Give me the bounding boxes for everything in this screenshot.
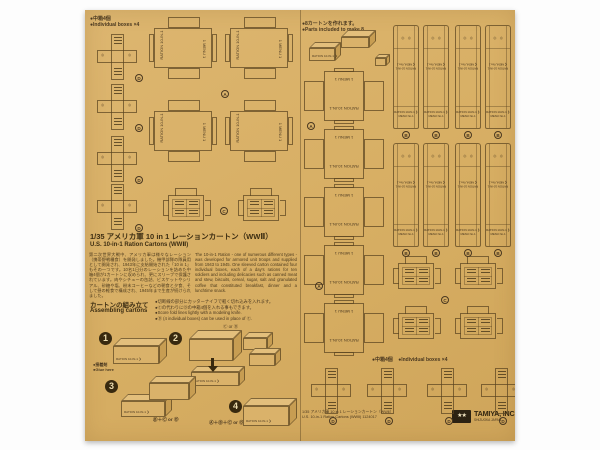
assembly-note-4: ●Ⓓ (4 individual boxes) can be used in p… <box>155 316 252 321</box>
print-text-block <box>467 269 476 275</box>
carton-tab <box>334 236 354 240</box>
carton-strip-template: ◎ ◎ RATION 10-IN-1❮ MENU No.1 RATION 10-… <box>455 25 481 129</box>
photo-background: ●中箱4個 ●Individual boxes ×4 ●8カートンを作れます。 … <box>0 0 600 450</box>
print-text-block <box>444 402 452 410</box>
circled-part-mark-b: B <box>494 249 502 257</box>
brand-subtext: SHIZUOKA JAPAN <box>474 418 501 422</box>
box-print-text: RATION 10-IN-1 ❯ <box>312 54 337 58</box>
print-text-block <box>264 201 273 207</box>
step-4-formula: Ⓐ＋Ⓑ＋Ⓒ or Ⓓ <box>209 420 244 426</box>
note-line-en: ●Individual boxes ×4 <box>398 357 447 363</box>
strip-fold-line <box>486 224 511 225</box>
strip-fold-line <box>456 48 481 49</box>
individual-box-template: ◎ ◎ <box>367 368 407 414</box>
strip-print-line: RATION 10-IN-1 <box>394 184 418 188</box>
strip-print-line: ❮ MENU No.1 <box>424 62 448 66</box>
punch-hole-mark: ◎ <box>128 155 131 159</box>
open-carton-illustration <box>341 30 376 48</box>
carton-tab <box>334 126 354 130</box>
carton-print-text: 1 MENU 1 <box>326 309 362 314</box>
step-2-carton <box>189 330 242 361</box>
strip-print-text: RATION 10-IN-1❮ MENU No.1 <box>394 180 418 188</box>
circled-part-mark-d: D <box>135 176 143 184</box>
strip-print-text: RATION 10-IN-1❮ MENU No.1 <box>486 62 510 70</box>
lid-tab <box>393 268 399 284</box>
carton-tab <box>334 294 354 298</box>
lid-grid-line <box>402 326 430 327</box>
strip-print-line: ❮ MENU No.1 <box>486 180 510 184</box>
strip-print-text: RATION 10-IN-1 ❯MENU No.1 <box>486 228 510 236</box>
print-text-block <box>405 328 414 334</box>
box-front-face: RATION 10-IN-1 ❯ <box>113 346 159 364</box>
assembling-heading-english: Assembling cartons <box>90 308 147 314</box>
carton-flap <box>168 151 200 162</box>
lid-tab <box>497 318 503 334</box>
strip-print-text: RATION 10-IN-1❮ MENU No.1 <box>424 180 448 188</box>
carton-print-text: 1 MENU 1 <box>278 31 283 67</box>
box-print-text: RATION 10-IN-1 ❯ <box>246 419 271 423</box>
carton-flap <box>288 34 293 62</box>
box-front-face <box>341 37 369 48</box>
carton-flap <box>304 81 324 111</box>
carton-print-text: RATION 10-IN-1 <box>326 164 362 169</box>
lid-flap <box>467 306 489 314</box>
carton-sleeve-template: RATION 10-IN-1 1 MENU 1 <box>149 98 219 164</box>
carton-lid-template <box>398 313 434 339</box>
print-text-block <box>481 328 490 334</box>
circled-part-mark-d: D <box>329 417 337 425</box>
lid-grid-line <box>402 276 430 277</box>
circled-part-mark-d: D <box>499 417 507 425</box>
carton-print-text: RATION 10-IN-1 <box>326 222 362 227</box>
lid-tab <box>238 200 244 216</box>
strip-fold-line <box>456 166 481 167</box>
carton-print-text: 1 MENU 1 <box>326 251 362 256</box>
circled-part-mark-d: D <box>135 124 143 132</box>
strip-print-dots: ◎ ◎ <box>424 154 448 159</box>
description-english: The 10-in-1 Ration - one of numerous dif… <box>195 252 297 300</box>
strip-print-text: RATION 10-IN-1❮ MENU No.1 <box>486 180 510 188</box>
carton-tab <box>334 68 354 72</box>
carton-lid-template <box>460 263 496 289</box>
carton-flap <box>168 17 200 28</box>
print-text-block <box>481 269 490 275</box>
strip-print-line: RATION 10-IN-1 <box>486 184 510 188</box>
print-text-block <box>405 269 414 275</box>
carton-sleeve-template: RATION 10-IN-1 1 MENU 1 <box>225 98 295 164</box>
step-2-sleeve: RATION 10-IN-1 ❯ <box>191 366 245 386</box>
punch-hole-mark: ◎ <box>485 387 488 391</box>
punch-hole-mark: ◎ <box>128 53 131 57</box>
circled-part-mark-b: B <box>432 249 440 257</box>
circled-part-mark-d: D <box>385 417 393 425</box>
circled-part-mark-b: B <box>464 131 472 139</box>
carton-tab <box>334 178 354 182</box>
print-text-block <box>467 319 476 325</box>
strip-print-text: RATION 10-IN-1 ❯MENU No.1 <box>486 110 510 118</box>
strip-print-line: MENU No.1 <box>456 232 480 236</box>
carton-strip-template: ◎ ◎ RATION 10-IN-1❮ MENU No.1 RATION 10-… <box>423 143 449 247</box>
carton-print-text: 1 MENU 1 <box>326 193 362 198</box>
print-text-block <box>419 319 428 325</box>
strip-print-line: MENU No.1 <box>456 114 480 118</box>
carton-sleeve-template: 1 MENU 1 RATION 10-IN-1 <box>304 300 384 356</box>
lid-flap <box>405 256 427 264</box>
punch-hole-mark: ◎ <box>315 387 318 391</box>
glue-line-en: ●Glue here <box>93 367 114 372</box>
print-text-block <box>384 371 392 379</box>
carton-strip-template: ◎ ◎ RATION 10-IN-1❮ MENU No.1 RATION 10-… <box>423 25 449 129</box>
carton-print-text: RATION 10-IN-1 <box>326 338 362 343</box>
punch-hole-mark: ◎ <box>128 103 131 107</box>
step-4-finished-carton: RATION 10-IN-1 ❯ <box>243 398 297 426</box>
lid-tab <box>205 200 211 216</box>
strip-print-dots: ◎ ◎ <box>486 36 510 41</box>
strip-print-dots: ◎ ◎ <box>394 154 418 159</box>
strip-fold-line <box>424 224 449 225</box>
lid-grid-line <box>464 326 492 327</box>
strip-print-line: ❮ MENU No.1 <box>394 180 418 184</box>
print-text-block <box>405 278 414 284</box>
carton-lid-template <box>460 313 496 339</box>
print-text-block <box>114 218 122 226</box>
individual-box-template: ◎ ◎ <box>97 136 137 182</box>
print-text-block <box>467 328 476 334</box>
lid-flap <box>250 188 272 196</box>
carton-strip-template: ◎ ◎ RATION 10-IN-1❮ MENU No.1 RATION 10-… <box>485 25 511 129</box>
strip-print-line: MENU No.1 <box>394 232 418 236</box>
punch-hole-mark: ◎ <box>101 155 104 159</box>
carton-tab <box>334 300 354 304</box>
note-individual-boxes-top: ●中箱4個 ●Individual boxes ×4 <box>90 16 139 28</box>
carton-lid-template <box>168 195 204 221</box>
print-text-block <box>498 371 506 379</box>
step-2-badge: 2 <box>169 332 182 345</box>
circled-part-mark-b: B <box>464 249 472 257</box>
individual-box-template: ◎ ◎ <box>311 368 351 414</box>
carton-flap <box>225 34 230 62</box>
circled-part-mark-c: C <box>441 296 449 304</box>
individual-box-template: ◎ ◎ <box>97 34 137 80</box>
finished-carton-illustration: RATION 10-IN-1 ❯ <box>309 42 341 61</box>
print-text-block <box>114 87 122 95</box>
strip-print-line: RATION 10-IN-1 <box>424 66 448 70</box>
carton-sleeve-template: RATION 10-IN-1 1 MENU 1 <box>149 15 219 81</box>
strip-fold-line <box>424 166 449 167</box>
print-text-block <box>419 269 428 275</box>
strip-print-line: ❮ MENU No.1 <box>394 62 418 66</box>
carton-flap <box>149 117 154 145</box>
strip-print-line: RATION 10-IN-1 <box>394 66 418 70</box>
print-text-block <box>189 210 198 216</box>
lid-flap <box>175 188 197 196</box>
strip-print-dots: ◎ ◎ <box>456 154 480 159</box>
step-1-badge: 1 <box>99 332 112 345</box>
print-text-block <box>189 201 198 207</box>
carton-flap <box>304 313 324 343</box>
carton-sleeve-template: RATION 10-IN-1 1 MENU 1 <box>225 15 295 81</box>
carton-print-text: RATION 10-IN-1 <box>326 106 362 111</box>
carton-flap <box>364 81 384 111</box>
carton-flap <box>244 151 276 162</box>
carton-flap <box>149 34 154 62</box>
lid-tab <box>280 200 286 216</box>
print-text-block <box>250 210 259 216</box>
strip-print-line: ❮ MENU No.1 <box>424 180 448 184</box>
carton-flap <box>364 255 384 285</box>
note-individual-boxes-bottom: ●中箱4個 ●Individual boxes ×4 <box>372 357 448 363</box>
lid-flap <box>405 306 427 314</box>
lid-tab <box>163 200 169 216</box>
instruction-sheet: ●中箱4個 ●Individual boxes ×4 ●8カートンを作れます。 … <box>85 10 515 441</box>
lid-tab <box>393 318 399 334</box>
small-box-illustration <box>375 54 390 66</box>
print-text-block <box>250 201 259 207</box>
carton-sleeve-template: 1 MENU 1 RATION 10-IN-1 <box>304 68 384 124</box>
carton-strip-template: ◎ ◎ RATION 10-IN-1❮ MENU No.1 RATION 10-… <box>455 143 481 247</box>
carton-flap <box>212 34 217 62</box>
strip-fold-line <box>394 48 419 49</box>
circled-part-mark-b: B <box>432 131 440 139</box>
carton-flap <box>168 68 200 79</box>
strip-fold-line <box>456 106 481 107</box>
print-text-block <box>175 210 184 216</box>
box-front-face: RATION 10-IN-1 ❯ <box>309 48 335 61</box>
carton-flap <box>244 68 276 79</box>
print-text-block <box>467 278 476 284</box>
print-text-block <box>264 210 273 216</box>
carton-flap <box>168 100 200 111</box>
individual-box-template: ◎ ◎ <box>427 368 467 414</box>
carton-print-text: 1 MENU 1 <box>326 135 362 140</box>
lid-flap <box>467 256 489 264</box>
carton-flap <box>288 117 293 145</box>
strip-print-line: ❮ MENU No.1 <box>486 62 510 66</box>
lid-grid-line <box>464 276 492 277</box>
strip-fold-line <box>486 166 511 167</box>
lid-grid-line <box>172 208 200 209</box>
print-text-block <box>384 402 392 410</box>
assembly-note-3: ●Score fold lines lightly with a modelin… <box>155 310 242 315</box>
circled-part-mark-b: B <box>494 131 502 139</box>
strip-fold-line <box>424 48 449 49</box>
lid-grid-line <box>247 208 275 209</box>
print-text-block <box>481 278 490 284</box>
punch-hole-mark: ◎ <box>101 203 104 207</box>
box-front-face: RATION 10-IN-1 ❯ <box>121 401 165 417</box>
box-front-face <box>149 383 189 400</box>
individual-box-template: ◎ ◎ <box>481 368 515 414</box>
strip-print-dots: ◎ ◎ <box>394 36 418 41</box>
print-text-block <box>419 278 428 284</box>
strip-print-line: MENU No.1 <box>486 232 510 236</box>
strip-print-line: RATION 10-IN-1 <box>456 184 480 188</box>
description-japanese: 第二次世界大戦中、アメリカ軍は様々なレーション（携帯野戦糧食）を開発しました。機… <box>89 252 191 300</box>
strip-fold-line <box>394 106 419 107</box>
carton-flap <box>364 313 384 343</box>
box-print-text: RATION 10-IN-1 ❯ <box>124 410 149 414</box>
carton-print-text: 1 MENU 1 <box>278 114 283 150</box>
print-text-block <box>114 170 122 178</box>
print-text-block <box>481 319 490 325</box>
carton-print-text: RATION 10-IN-1 <box>235 110 240 146</box>
strip-print-dots: ◎ ◎ <box>456 36 480 41</box>
circled-part-mark-a: A <box>307 122 315 130</box>
circled-part-mark-d: D <box>445 417 453 425</box>
carton-flap <box>364 197 384 227</box>
punch-hole-mark: ◎ <box>398 387 401 391</box>
carton-lid-template <box>243 195 279 221</box>
insert-direction-arrow <box>211 358 214 366</box>
print-text-block <box>175 201 184 207</box>
step-3-badge: 3 <box>105 380 118 393</box>
carton-flap <box>304 197 324 227</box>
print-text-block <box>498 402 506 410</box>
carton-sleeve-template: 1 MENU 1 RATION 10-IN-1 <box>304 126 384 182</box>
print-text-block <box>114 139 122 147</box>
strip-print-text: RATION 10-IN-1❮ MENU No.1 <box>456 62 480 70</box>
step-3-formula: Ⓑ＋Ⓒ or Ⓓ <box>153 417 179 423</box>
carton-print-text: 1 MENU 1 <box>202 31 207 67</box>
punch-hole-mark: ◎ <box>431 387 434 391</box>
carton-sleeve-template: 1 MENU 1 RATION 10-IN-1 <box>304 184 384 240</box>
strip-print-text: RATION 10-IN-1 ❯MENU No.1 <box>424 110 448 118</box>
kit-title-english: U.S. 10-in-1 Ration Cartons (WWⅡ) <box>90 241 188 248</box>
box-side-face <box>386 54 390 66</box>
carton-flap <box>364 139 384 169</box>
step-1-carton: RATION 10-IN-1 ❯ <box>113 338 167 364</box>
box-front-face: RATION 10-IN-1 ❯ <box>191 372 239 386</box>
strip-fold-line <box>486 106 511 107</box>
carton-tab <box>334 352 354 356</box>
circled-part-mark-b: B <box>402 249 410 257</box>
strip-print-dots: ◎ ◎ <box>486 154 510 159</box>
box-print-text: RATION 10-IN-1 ❯ <box>194 379 219 383</box>
carton-flap <box>304 255 324 285</box>
lid-tab <box>497 268 503 284</box>
carton-flap <box>225 117 230 145</box>
strip-fold-line <box>394 166 419 167</box>
note-line-jp: ●中箱4個 <box>372 357 393 363</box>
box-front-face <box>375 58 386 66</box>
punch-hole-mark: ◎ <box>342 387 345 391</box>
print-text-block <box>328 402 336 410</box>
circled-part-mark-c: C <box>220 207 228 215</box>
box-print-text: RATION 10-IN-1 ❯ <box>116 357 141 361</box>
strip-print-text: RATION 10-IN-1 ❯MENU No.1 <box>394 110 418 118</box>
print-text-block <box>444 371 452 379</box>
print-text-block <box>114 68 122 76</box>
individual-box-template: ◎ ◎ <box>97 84 137 130</box>
carton-print-text: RATION 10-IN-1 <box>159 27 164 63</box>
carton-tab <box>334 242 354 246</box>
lid-tab <box>435 268 441 284</box>
step-3-sleeve <box>149 376 196 400</box>
carton-strip-template: ◎ ◎ RATION 10-IN-1❮ MENU No.1 RATION 10-… <box>393 25 419 129</box>
punch-hole-mark: ◎ <box>128 203 131 207</box>
carton-print-text: 1 MENU 1 <box>202 114 207 150</box>
carton-sleeve-template: 1 MENU 1 RATION 10-IN-1 <box>304 242 384 298</box>
circled-part-mark-d: D <box>135 224 143 232</box>
print-text-block <box>419 328 428 334</box>
print-text-block <box>114 118 122 126</box>
strip-print-line: MENU No.1 <box>424 232 448 236</box>
strip-print-text: RATION 10-IN-1❮ MENU No.1 <box>456 180 480 188</box>
print-text-block <box>114 187 122 195</box>
print-text-block <box>405 319 414 325</box>
carton-print-text: RATION 10-IN-1 <box>159 110 164 146</box>
punch-hole-mark: ◎ <box>371 387 374 391</box>
strip-print-line: ❮ MENU No.1 <box>456 180 480 184</box>
individual-box-template: ◎ ◎ <box>97 184 137 230</box>
strip-fold-line <box>486 48 511 49</box>
lid-tab <box>455 318 461 334</box>
glue-label-step1: ●接着剤 ●Glue here <box>93 362 114 372</box>
strip-print-line: ❮ MENU No.1 <box>456 62 480 66</box>
carton-strip-template: ◎ ◎ RATION 10-IN-1❮ MENU No.1 RATION 10-… <box>485 143 511 247</box>
strip-print-line: MENU No.1 <box>424 114 448 118</box>
step-4-badge: 4 <box>229 400 242 413</box>
print-text-block <box>328 371 336 379</box>
print-text-block <box>114 37 122 45</box>
strip-print-text: RATION 10-IN-1 ❯MENU No.1 <box>394 228 418 236</box>
carton-flap <box>212 117 217 145</box>
carton-flap <box>304 139 324 169</box>
assembly-note-2: ●Ⓒの代わりにⒹの中箱4個を入れる事もできます。 <box>155 305 254 310</box>
strip-print-line: RATION 10-IN-1 <box>486 66 510 70</box>
strip-print-text: RATION 10-IN-1 ❯MENU No.1 <box>424 228 448 236</box>
punch-hole-mark: ◎ <box>512 387 515 391</box>
carton-print-text: 1 MENU 1 <box>326 77 362 82</box>
strip-fold-line <box>456 224 481 225</box>
strip-print-text: RATION 10-IN-1❮ MENU No.1 <box>424 62 448 70</box>
strip-print-line: MENU No.1 <box>394 114 418 118</box>
circled-part-mark-d: D <box>135 74 143 82</box>
carton-strip-template: ◎ ◎ RATION 10-IN-1❮ MENU No.1 RATION 10-… <box>393 143 419 247</box>
sheet-fold-divider <box>300 10 301 441</box>
carton-print-text: RATION 10-IN-1 <box>326 280 362 285</box>
carton-lid-template <box>398 263 434 289</box>
footer-title-english: U.S. 10-in-1 Ration Cartons (WWⅡ) 112401… <box>302 415 377 420</box>
circled-part-mark-a: A <box>315 282 323 290</box>
carton-tab <box>334 184 354 188</box>
carton-print-text: RATION 10-IN-1 <box>235 27 240 63</box>
carton-flap <box>244 100 276 111</box>
carton-tab <box>334 120 354 124</box>
circled-part-mark-a: A <box>221 90 229 98</box>
punch-hole-mark: ◎ <box>458 387 461 391</box>
strip-print-text: RATION 10-IN-1 ❯MENU No.1 <box>456 228 480 236</box>
assembly-note-1: ●切断線の部分にカッターナイフで軽く切れ込みを入れます。 <box>155 299 273 304</box>
strip-print-text: RATION 10-IN-1 ❯MENU No.1 <box>456 110 480 118</box>
circled-part-mark-b: B <box>402 131 410 139</box>
punch-hole-mark: ◎ <box>101 103 104 107</box>
note-line-en: ●Individual boxes ×4 <box>90 22 139 28</box>
strip-print-text: RATION 10-IN-1❮ MENU No.1 <box>394 62 418 70</box>
strip-print-dots: ◎ ◎ <box>424 36 448 41</box>
strip-print-line: RATION 10-IN-1 <box>456 66 480 70</box>
punch-hole-mark: ◎ <box>101 53 104 57</box>
lid-tab <box>455 268 461 284</box>
step-2-inner-box <box>249 348 281 366</box>
strip-print-line: MENU No.1 <box>486 114 510 118</box>
box-front-face <box>249 354 275 366</box>
strip-print-line: RATION 10-IN-1 <box>424 184 448 188</box>
strip-fold-line <box>424 106 449 107</box>
lid-tab <box>435 318 441 334</box>
box-front-face: RATION 10-IN-1 ❯ <box>243 406 289 426</box>
strip-fold-line <box>394 224 419 225</box>
